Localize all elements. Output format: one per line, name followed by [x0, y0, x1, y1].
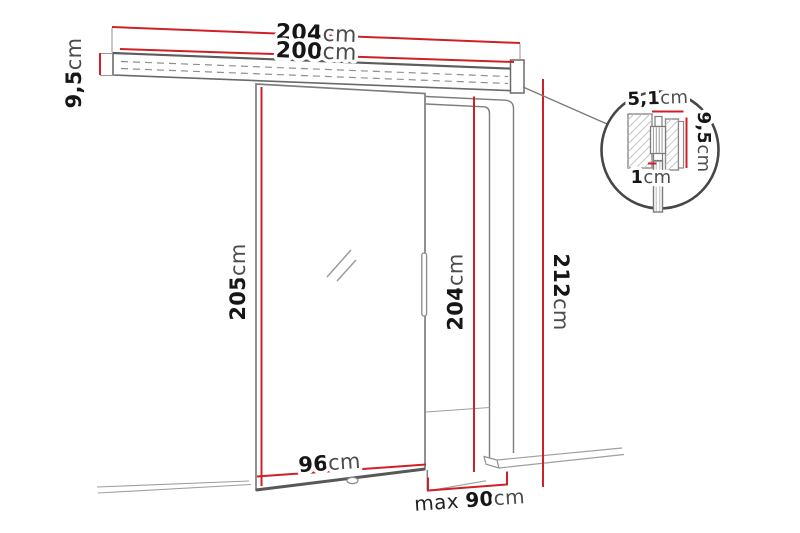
detail-inset: 5,1cm 9,5cm 1cm — [523, 87, 719, 212]
diagram-svg: 204cm 200cm 9,5cm 205cm 96cm 204cm 212cm… — [0, 0, 800, 533]
dim-detail-panel-thickness: 1cm — [631, 164, 672, 189]
rail-end-cap — [511, 60, 525, 93]
inset-track-block — [666, 119, 684, 170]
dim-label-opening-height: 204cm — [444, 253, 468, 330]
dim-label-track-height: 9,5cm — [693, 112, 714, 173]
dim-label-total-height: 212cm — [549, 253, 573, 330]
dim-label-door-height: 205cm — [226, 243, 250, 320]
inset-cover-plate — [679, 122, 684, 169]
sliding-door — [256, 84, 427, 490]
door-frame — [426, 97, 514, 491]
dim-detail-track-width: 5,1cm — [627, 87, 689, 112]
door-handle — [422, 253, 427, 316]
dim-label-opening-width: max 90cm — [413, 484, 525, 516]
floor-threshold — [484, 448, 624, 468]
floor-lines-left — [97, 481, 251, 493]
dim-rail-height: 9,5cm — [62, 38, 112, 109]
inset-leader-line — [523, 87, 607, 124]
dim-label-door-width: 96cm — [298, 449, 362, 477]
dim-label-rail-height: 9,5cm — [62, 38, 86, 109]
dim-opening-width: max 90cm — [413, 472, 525, 516]
dim-label-rail-inner: 200cm — [275, 38, 357, 66]
dim-label-panel-thickness: 1cm — [631, 167, 672, 188]
dim-label-track-width: 5,1cm — [627, 87, 689, 110]
dim-total-height: 212cm — [543, 79, 573, 487]
sliding-door-dimension-diagram: 204cm 200cm 9,5cm 205cm 96cm 204cm 212cm… — [0, 0, 800, 533]
frame-joint-line — [426, 408, 490, 413]
inset-wall-block — [628, 114, 652, 168]
floor-guide — [347, 477, 358, 483]
dim-opening-height: 204cm — [444, 97, 475, 473]
